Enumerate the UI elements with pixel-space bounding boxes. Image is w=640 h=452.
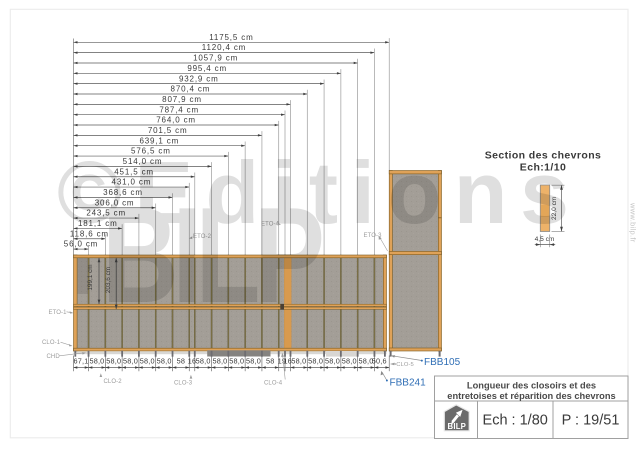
svg-text:entretoises et réparition des: entretoises et réparition des chevrons — [447, 391, 615, 401]
svg-text:787,4 cm: 787,4 cm — [159, 105, 199, 114]
svg-text:199,1 cm: 199,1 cm — [87, 264, 94, 290]
svg-text:58,0: 58,0 — [89, 357, 104, 366]
svg-text:1057,9 cm: 1057,9 cm — [193, 54, 238, 63]
svg-text:58,0: 58,0 — [325, 357, 340, 366]
svg-text:50,6: 50,6 — [372, 357, 387, 366]
svg-text:CLO-5: CLO-5 — [396, 362, 414, 368]
svg-text:58,0: 58,0 — [157, 357, 172, 366]
svg-text:701,5 cm: 701,5 cm — [148, 126, 188, 135]
svg-text:Longueur des closoirs et des: Longueur des closoirs et des — [467, 381, 596, 391]
svg-text:58,0: 58,0 — [291, 357, 306, 366]
svg-text:P : 19/51: P : 19/51 — [562, 412, 620, 428]
svg-text:58,0: 58,0 — [246, 357, 261, 366]
svg-text:FBB105: FBB105 — [424, 357, 461, 368]
svg-text:58,0: 58,0 — [342, 357, 357, 366]
svg-text:58,0: 58,0 — [196, 357, 211, 366]
svg-text:58: 58 — [177, 357, 186, 366]
svg-text:FBB241: FBB241 — [390, 378, 427, 389]
svg-text:870,4 cm: 870,4 cm — [171, 85, 211, 94]
svg-text:58,0: 58,0 — [140, 357, 155, 366]
svg-text:www.bilp.fr: www.bilp.fr — [629, 202, 638, 243]
svg-text:58,0: 58,0 — [106, 357, 121, 366]
svg-text:CLO-3: CLO-3 — [174, 381, 193, 387]
svg-text:BILP: BILP — [448, 422, 467, 431]
svg-text:807,9 cm: 807,9 cm — [162, 95, 202, 104]
svg-text:58,0: 58,0 — [308, 357, 323, 366]
svg-text:CLO-2: CLO-2 — [104, 379, 123, 385]
svg-text:1120,4 cm: 1120,4 cm — [202, 43, 246, 52]
svg-text:58: 58 — [266, 357, 275, 366]
svg-text:58,0: 58,0 — [123, 357, 138, 366]
svg-text:CLO-1: CLO-1 — [42, 340, 61, 346]
svg-text:ETO-1: ETO-1 — [49, 310, 68, 316]
svg-text:67,1: 67,1 — [74, 357, 89, 366]
svg-text:58,0: 58,0 — [212, 357, 227, 366]
svg-text:764,0 cm: 764,0 cm — [156, 116, 196, 125]
svg-text:1175,5 cm: 1175,5 cm — [209, 33, 253, 42]
svg-text:BILP: BILP — [102, 179, 322, 331]
svg-text:CLO-4: CLO-4 — [264, 381, 283, 387]
svg-text:995,4 cm: 995,4 cm — [187, 64, 227, 73]
svg-text:Ech : 1/80: Ech : 1/80 — [483, 412, 548, 428]
svg-text:58,0: 58,0 — [229, 357, 244, 366]
svg-text:CHD: CHD — [47, 354, 61, 360]
svg-text:932,9 cm: 932,9 cm — [179, 74, 219, 83]
